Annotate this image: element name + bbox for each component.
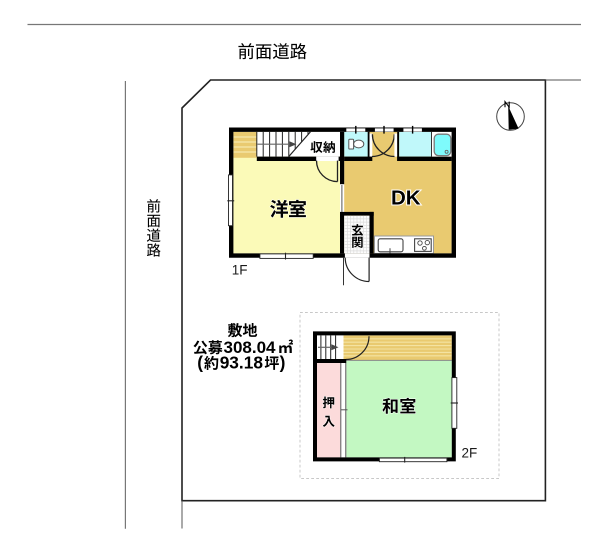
svg-text:(: (: [197, 353, 203, 373]
svg-text:2F: 2F: [462, 446, 478, 461]
svg-text:1F: 1F: [232, 262, 248, 277]
svg-text:): ): [280, 353, 286, 373]
svg-text:93.18: 93.18: [220, 353, 264, 373]
svg-text:DK: DK: [391, 187, 421, 210]
